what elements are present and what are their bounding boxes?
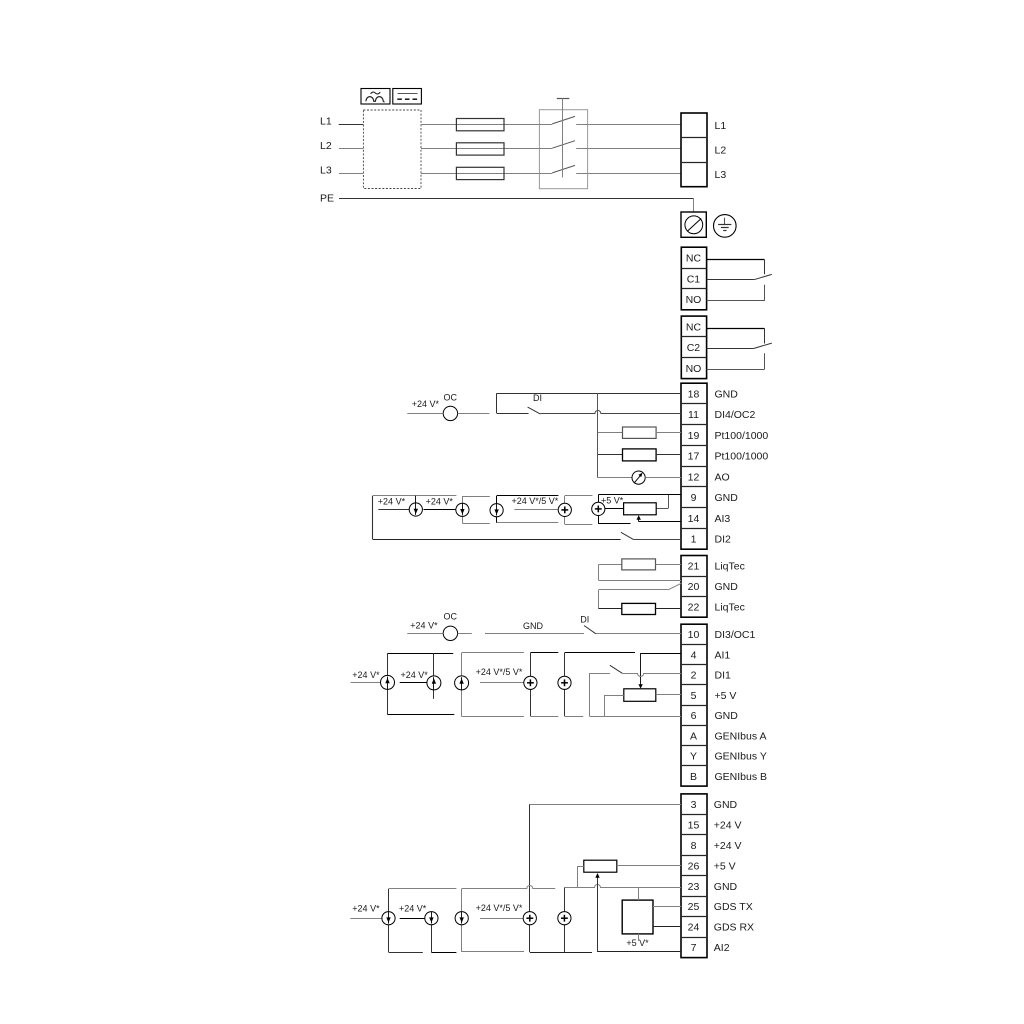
svg-text:26: 26 (688, 860, 700, 872)
svg-text:15: 15 (688, 819, 700, 831)
svg-text:2: 2 (691, 670, 697, 682)
svg-text:B: B (690, 771, 697, 783)
svg-text:19: 19 (688, 430, 700, 442)
svg-text:DI: DI (533, 393, 542, 403)
svg-text:LiqTec: LiqTec (715, 602, 745, 614)
svg-text:DI3/OC1: DI3/OC1 (715, 629, 756, 641)
svg-text:DI: DI (580, 614, 589, 624)
svg-text:NO: NO (686, 363, 702, 375)
svg-text:+24 V*: +24 V* (426, 497, 454, 507)
svg-text:NC: NC (686, 252, 702, 264)
svg-text:3: 3 (691, 799, 697, 811)
svg-text:GND: GND (714, 881, 738, 893)
svg-text:17: 17 (688, 451, 700, 463)
svg-text:OC: OC (444, 393, 458, 403)
svg-text:GND: GND (714, 799, 738, 811)
svg-text:+5 V*: +5 V* (626, 938, 649, 948)
svg-text:NC: NC (686, 321, 702, 333)
svg-text:18: 18 (688, 388, 700, 400)
svg-text:Pt100/1000: Pt100/1000 (715, 430, 769, 442)
svg-text:PE: PE (320, 193, 334, 205)
svg-text:8: 8 (691, 840, 697, 852)
svg-text:GENIbus A: GENIbus A (715, 730, 767, 742)
svg-text:LiqTec: LiqTec (715, 561, 745, 573)
svg-text:C1: C1 (687, 273, 701, 285)
svg-text:GENIbus B: GENIbus B (715, 771, 768, 783)
svg-text:4: 4 (691, 649, 697, 661)
svg-text:GND: GND (715, 492, 739, 504)
svg-text:AI2: AI2 (714, 942, 730, 954)
svg-text:+24 V*/5 V*: +24 V*/5 V* (512, 496, 559, 506)
svg-text:14: 14 (688, 513, 700, 525)
svg-text:23: 23 (688, 881, 700, 893)
svg-text:GND: GND (715, 710, 739, 722)
svg-text:Y: Y (690, 751, 697, 763)
svg-text:L3: L3 (320, 165, 332, 177)
svg-text:+5 V: +5 V (714, 860, 736, 872)
svg-text:NO: NO (686, 294, 702, 306)
svg-text:+24 V: +24 V (714, 819, 742, 831)
svg-text:+24 V*: +24 V* (412, 399, 440, 409)
svg-text:+24 V*: +24 V* (352, 904, 380, 914)
svg-text:GDS TX: GDS TX (714, 901, 753, 913)
svg-text:L1: L1 (320, 116, 332, 128)
svg-text:AO: AO (715, 471, 730, 483)
svg-text:OC: OC (444, 612, 458, 622)
svg-text:11: 11 (688, 409, 699, 421)
svg-text:C2: C2 (687, 342, 701, 354)
svg-text:L3: L3 (715, 169, 727, 181)
svg-text:L1: L1 (715, 120, 727, 132)
svg-text:+24 V*: +24 V* (410, 621, 438, 631)
svg-text:GND: GND (715, 581, 739, 593)
svg-text:DI4/OC2: DI4/OC2 (715, 409, 756, 421)
svg-text:+24 V*: +24 V* (378, 497, 406, 507)
svg-text:21: 21 (688, 561, 700, 573)
svg-text:24: 24 (688, 922, 700, 934)
svg-text:22: 22 (688, 602, 700, 614)
svg-text:L2: L2 (715, 145, 727, 157)
svg-text:5: 5 (691, 690, 697, 702)
svg-text:L2: L2 (320, 140, 332, 152)
svg-text:A: A (690, 730, 697, 742)
svg-text:1: 1 (691, 534, 697, 546)
svg-text:+24 V*/5 V*: +24 V*/5 V* (476, 667, 523, 677)
svg-text:9: 9 (691, 492, 697, 504)
svg-text:GND: GND (715, 388, 739, 400)
svg-text:12: 12 (688, 471, 700, 483)
svg-text:+24 V*/5 V*: +24 V*/5 V* (476, 903, 523, 913)
svg-text:+5 V*: +5 V* (601, 496, 624, 506)
svg-text:GDS RX: GDS RX (714, 922, 754, 934)
svg-text:25: 25 (688, 901, 700, 913)
svg-text:DI2: DI2 (715, 534, 732, 546)
svg-text:20: 20 (688, 581, 700, 593)
svg-text:+24 V*: +24 V* (401, 670, 429, 680)
svg-text:6: 6 (691, 710, 697, 722)
svg-text:GENIbus Y: GENIbus Y (715, 751, 767, 763)
svg-text:+24 V*: +24 V* (399, 904, 427, 914)
svg-text:+5 V: +5 V (715, 690, 737, 702)
svg-text:Pt100/1000: Pt100/1000 (715, 451, 769, 463)
svg-text:AI3: AI3 (715, 513, 731, 525)
svg-text:+24 V: +24 V (714, 840, 742, 852)
svg-text:GND: GND (523, 621, 544, 631)
svg-text:10: 10 (688, 629, 700, 641)
svg-text:AI1: AI1 (715, 649, 731, 661)
svg-text:DI1: DI1 (715, 670, 732, 682)
svg-text:+24 V*: +24 V* (352, 670, 380, 680)
svg-text:7: 7 (691, 942, 697, 954)
